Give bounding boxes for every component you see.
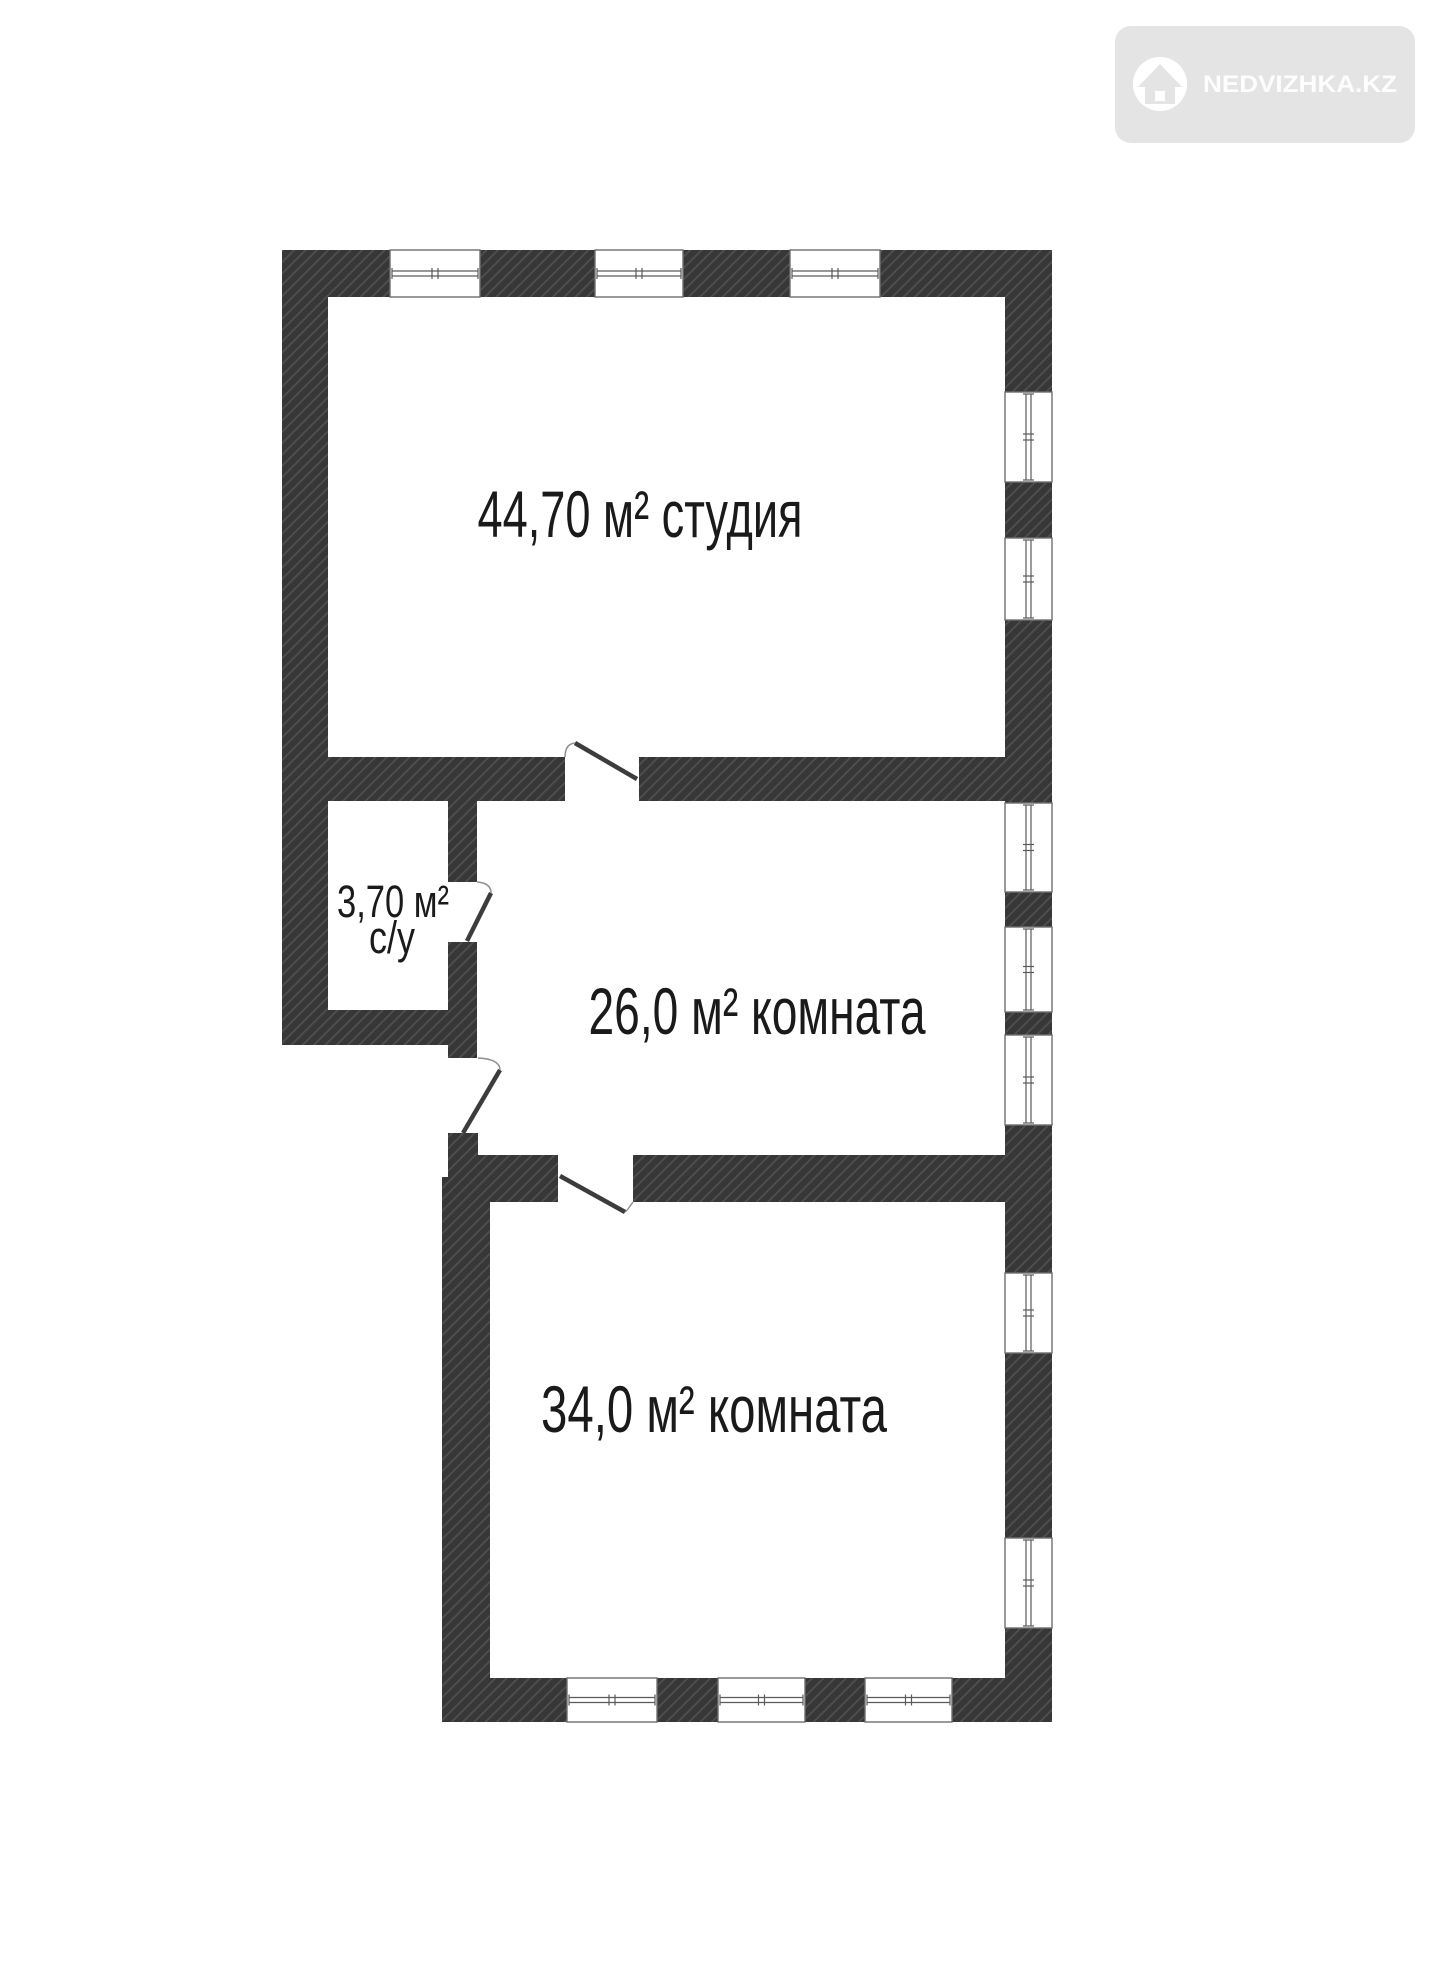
wall-segment — [448, 801, 477, 882]
wall-segment — [282, 297, 328, 1045]
window — [1005, 803, 1052, 892]
door-swing-arc — [625, 1202, 633, 1212]
wall-segment — [639, 757, 1052, 801]
window-frame — [790, 250, 880, 297]
window — [1005, 538, 1052, 620]
window-frame — [718, 1678, 805, 1722]
window-frame — [1005, 538, 1052, 620]
room-label-studio: 44,70 м² студия — [478, 477, 803, 551]
window — [865, 1678, 952, 1722]
door-leaf — [467, 893, 491, 941]
window-frame — [390, 250, 480, 297]
window — [390, 250, 480, 297]
window-frame — [567, 1678, 657, 1722]
window — [1005, 1273, 1052, 1353]
floor-plan-canvas: 44,70 м² студия 3,70 м² с/у 26,0 м² комн… — [0, 0, 1440, 1964]
door-swing-arc — [565, 743, 575, 757]
window-frame — [865, 1678, 952, 1722]
door-leaf — [560, 1176, 625, 1212]
door-swing-arc — [477, 882, 491, 893]
window — [1005, 1538, 1052, 1628]
window-frame — [1005, 392, 1052, 482]
brand-text: NEDVIZHKA.KZ — [1203, 71, 1397, 98]
wall-segment — [282, 1010, 477, 1045]
bathroom-type-label: с/у — [369, 912, 415, 963]
window-frame — [1005, 927, 1052, 1012]
window-frame — [1005, 1273, 1052, 1353]
wall-segment — [478, 1155, 558, 1202]
wall-segment — [442, 1177, 490, 1722]
window — [1005, 927, 1052, 1012]
wall-segment — [633, 1155, 1052, 1202]
watermark-badge: NEDVIZHKA.KZ — [1115, 26, 1415, 143]
window — [567, 1678, 657, 1722]
window — [1005, 1035, 1052, 1125]
door-leaf — [463, 1070, 500, 1133]
door-leaf — [575, 743, 637, 779]
window-frame — [1005, 1538, 1052, 1628]
window-frame — [1005, 1035, 1052, 1125]
room-label-34: 34,0 м² комната — [541, 1372, 887, 1446]
window — [1005, 392, 1052, 482]
door-swing-arc — [478, 1058, 500, 1070]
wall-segment — [282, 757, 565, 801]
window-frame — [595, 250, 683, 297]
floor-plan-page: 44,70 м² студия 3,70 м² с/у 26,0 м² комн… — [0, 0, 1440, 1964]
window — [790, 250, 880, 297]
window — [595, 250, 683, 297]
room-label-26: 26,0 м² комната — [589, 974, 926, 1048]
window-frame — [1005, 803, 1052, 892]
window — [718, 1678, 805, 1722]
